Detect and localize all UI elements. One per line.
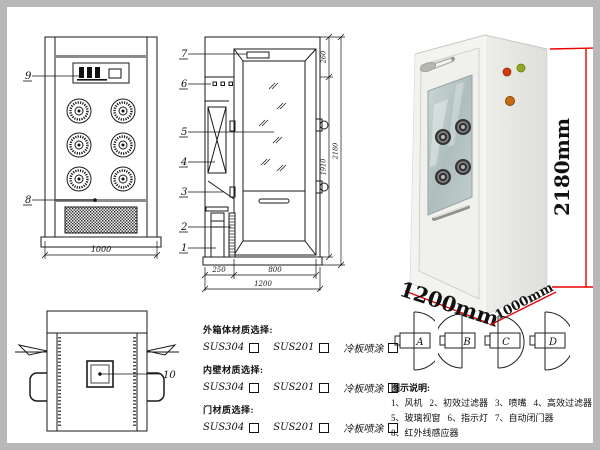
red-indicator-light [503,68,511,76]
config-A-label: A [415,337,423,348]
callout-2: 2 [180,222,187,233]
callout-grille: 8 [25,195,31,206]
config-B-label: B [462,337,470,348]
callout-1: 1 [181,243,187,254]
green-indicator-light [517,64,525,72]
config-A-diagram: A [393,308,435,374]
option-label: 冷板喷涂 [343,420,383,435]
checkbox-inner-sus304[interactable] [249,383,259,393]
side-view-drawing: 7 6 5 4 3 2 1 [177,23,355,301]
legend-item: 8、红外线感应器 [391,428,459,438]
option-label: SUS304 [203,422,244,433]
legend-item: 4、高效过滤器 [534,398,593,408]
dim-height-label: 2180mm [550,118,574,216]
dim-1200: 1200 [254,280,272,288]
checkbox-outer-sus201[interactable] [319,343,329,353]
front-view-drawing: 9 8 1000 [21,31,173,275]
legend-item: 2、初效过滤器 [430,398,489,408]
legend-row: 9、控制面板10、照明灯 [391,441,600,450]
callout-lamp: 10 [163,370,176,381]
glass-hatching [259,83,286,171]
option-label: SUS304 [203,382,244,393]
front-top-band [55,55,147,58]
option-label: SUS201 [273,342,314,353]
config-C-diagram: C [483,308,525,374]
fan-and-filter [205,82,235,257]
nozzles-front [67,99,135,191]
legend-item: 6、指示灯 [448,413,489,423]
parts-legend: 图示说明: 1、风机2、初效过滤器3、喷嘴4、高效过滤器 5、玻璃视窗6、指示灯… [391,381,600,450]
inner-wall-material-label: 内壁材质选择: [203,363,389,376]
option-label: SUS201 [273,422,314,433]
option-label: SUS304 [203,342,244,353]
legend-item: 3、喷嘴 [495,398,527,408]
door-material-label: 门材质选择: [203,403,389,416]
callout-control-panel: 9 [25,71,32,82]
config-C-label: C [502,337,510,348]
dim-width-1000: 1000 [91,245,111,254]
legend-row: 5、玻璃视窗6、指示灯7、自动闭门器8、红外线感应器 [391,411,600,441]
callout-7: 7 [181,49,188,60]
dim-800: 800 [268,266,282,274]
legend-row: 1、风机2、初效过滤器3、喷嘴4、高效过滤器 [391,396,600,411]
checkbox-outer-sus304[interactable] [249,343,259,353]
callout-6: 6 [181,79,188,90]
config-D-label: D [548,337,557,348]
legend-item: 5、玻璃视窗 [391,413,441,423]
front-bottom-band [55,199,147,202]
outer-box-material-label: 外箱体材质选择: [203,323,389,336]
option-label: 冷板喷涂 [343,380,383,395]
top-view-drawing: 10 [15,305,185,450]
option-label: 冷板喷涂 [343,340,383,355]
dim-2180: 2180 [332,143,340,161]
material-selection: 外箱体材质选择: SUS304 SUS201 冷板喷涂 内壁材质选择: SUS3… [203,323,389,443]
cabinet-side-face [485,35,547,315]
spec-sheet-page: 9 8 1000 [0,0,600,450]
door-swing-configs: A B C D [393,308,570,374]
dim-1910: 1910 [320,159,328,176]
config-B-diagram: B [438,308,480,374]
legend-item: 9、控制面板 [391,443,441,450]
checkbox-door-sus201[interactable] [319,423,329,433]
callout-3: 3 [181,187,187,198]
callout-4: 4 [180,157,187,168]
config-D-diagram: D [528,308,570,374]
control-panel [73,63,129,83]
checkbox-door-sus304[interactable] [249,423,259,433]
dim-250: 250 [211,266,226,274]
checkbox-inner-sus201[interactable] [319,383,329,393]
legend-item: 1、风机 [391,398,423,408]
callout-5: 5 [181,127,187,138]
product-photo: 2180mm 1200mm 1000mm [390,15,600,335]
option-label: SUS201 [273,382,314,393]
legend-item: 7、自动闭门器 [495,413,554,423]
dim-260: 260 [320,51,328,64]
emergency-button [506,97,515,106]
legend-item: 10、照明灯 [448,443,493,450]
legend-title: 图示说明: [391,381,600,396]
return-grille [65,207,137,233]
